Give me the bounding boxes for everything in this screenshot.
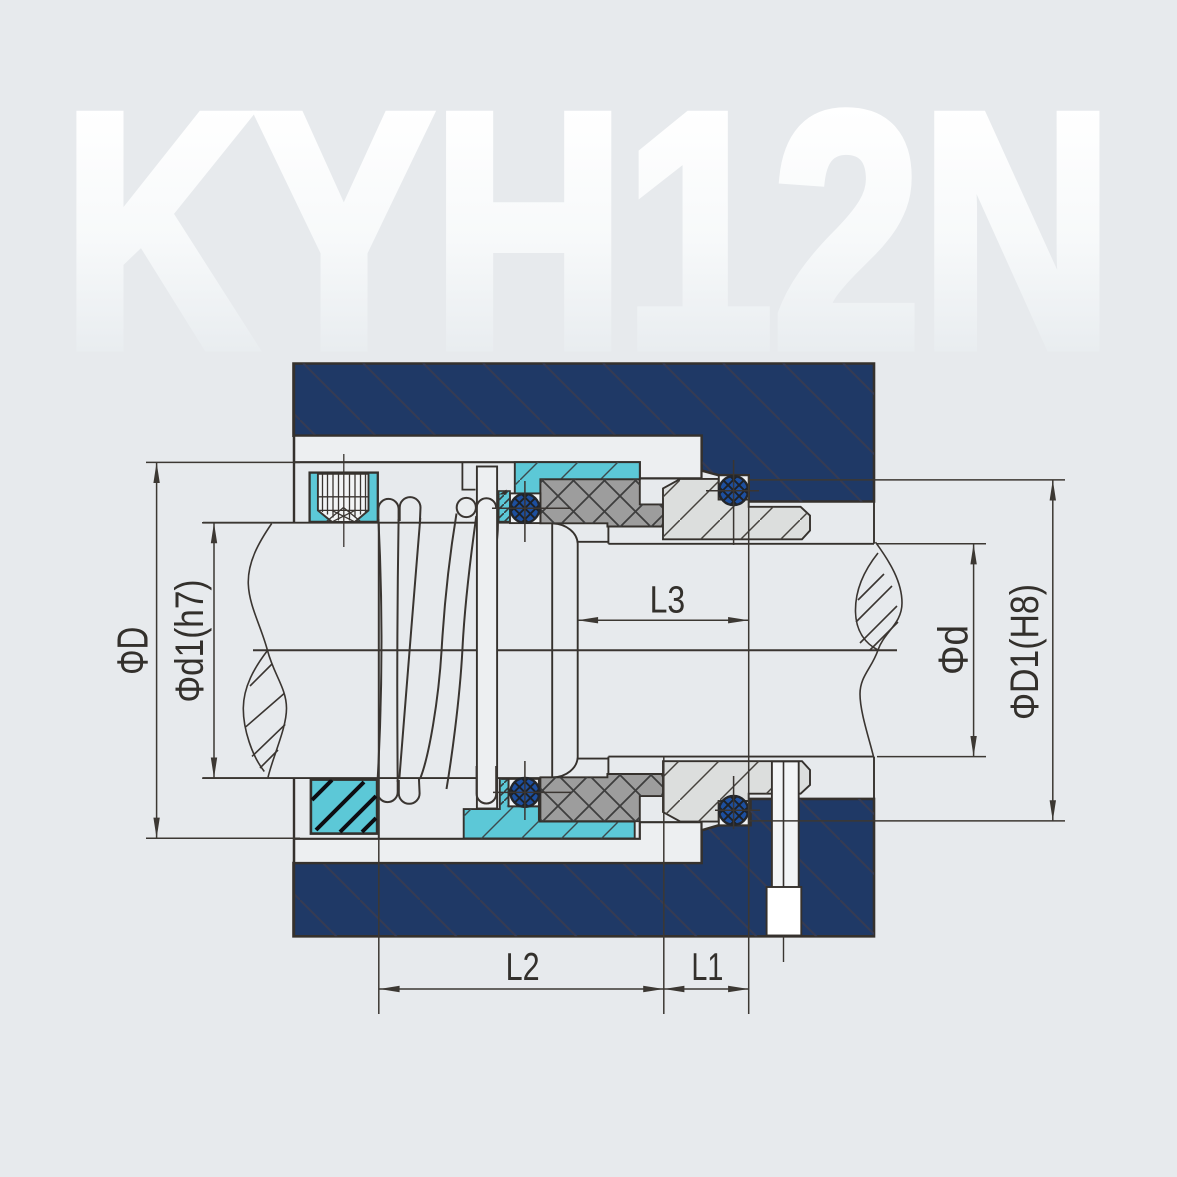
svg-text:KYH12N: KYH12N — [63, 44, 1113, 417]
svg-text:L1: L1 — [691, 946, 723, 989]
svg-text:ΦD1(H8): ΦD1(H8) — [1003, 584, 1047, 720]
svg-text:L2: L2 — [506, 946, 540, 989]
svg-text:Φd: Φd — [930, 625, 977, 675]
svg-text:Φd1(h7): Φd1(h7) — [168, 580, 212, 703]
svg-text:L3: L3 — [650, 580, 686, 622]
svg-text:ΦD: ΦD — [109, 627, 158, 675]
